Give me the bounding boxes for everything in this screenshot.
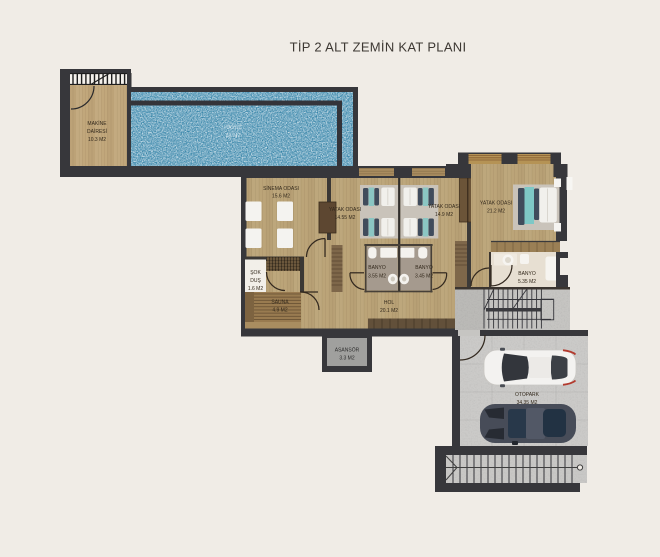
svg-text:BANYO: BANYO	[368, 265, 386, 271]
svg-text:1.6 M2: 1.6 M2	[248, 286, 264, 292]
svg-text:HAVUZ: HAVUZ	[224, 125, 243, 131]
svg-text:5.35 M2: 5.35 M2	[518, 279, 536, 285]
svg-text:21.2 M2: 21.2 M2	[487, 209, 505, 215]
svg-text:ASANSÖR: ASANSÖR	[335, 347, 360, 354]
svg-text:20.1 M2: 20.1 M2	[380, 308, 398, 314]
svg-text:14.9 M2: 14.9 M2	[435, 212, 453, 218]
svg-text:3.45 M2: 3.45 M2	[415, 274, 433, 280]
svg-text:DAİRESİ: DAİRESİ	[87, 128, 107, 135]
svg-text:DUŞ: DUŞ	[250, 278, 261, 284]
svg-text:HOL: HOL	[384, 300, 395, 306]
svg-text:YATAK ODASI: YATAK ODASI	[480, 201, 512, 207]
svg-text:ŞOK: ŞOK	[250, 270, 261, 276]
svg-text:15.6 M2: 15.6 M2	[272, 194, 290, 200]
svg-text:14.55 M2: 14.55 M2	[335, 215, 356, 221]
svg-text:SİNEMA ODASI: SİNEMA ODASI	[263, 185, 299, 192]
svg-text:3.55 M2: 3.55 M2	[368, 274, 386, 280]
svg-text:MAKİNE: MAKİNE	[87, 120, 107, 127]
svg-text:BANYO: BANYO	[518, 271, 536, 277]
svg-text:YATAK ODASI: YATAK ODASI	[428, 204, 460, 210]
svg-text:TİP 2 ALT ZEMİN KAT PLANI: TİP 2 ALT ZEMİN KAT PLANI	[290, 40, 467, 55]
svg-text:3.3 M2: 3.3 M2	[339, 356, 355, 362]
svg-text:10.3 M2: 10.3 M2	[88, 137, 106, 143]
svg-text:OTOPARK: OTOPARK	[515, 392, 540, 398]
svg-text:SAUNA: SAUNA	[271, 300, 289, 306]
svg-text:BANYO: BANYO	[415, 265, 433, 271]
svg-text:4.9 M2: 4.9 M2	[272, 308, 288, 314]
svg-text:33 M2: 33 M2	[226, 133, 241, 139]
svg-text:YATAK ODASI: YATAK ODASI	[329, 207, 361, 213]
